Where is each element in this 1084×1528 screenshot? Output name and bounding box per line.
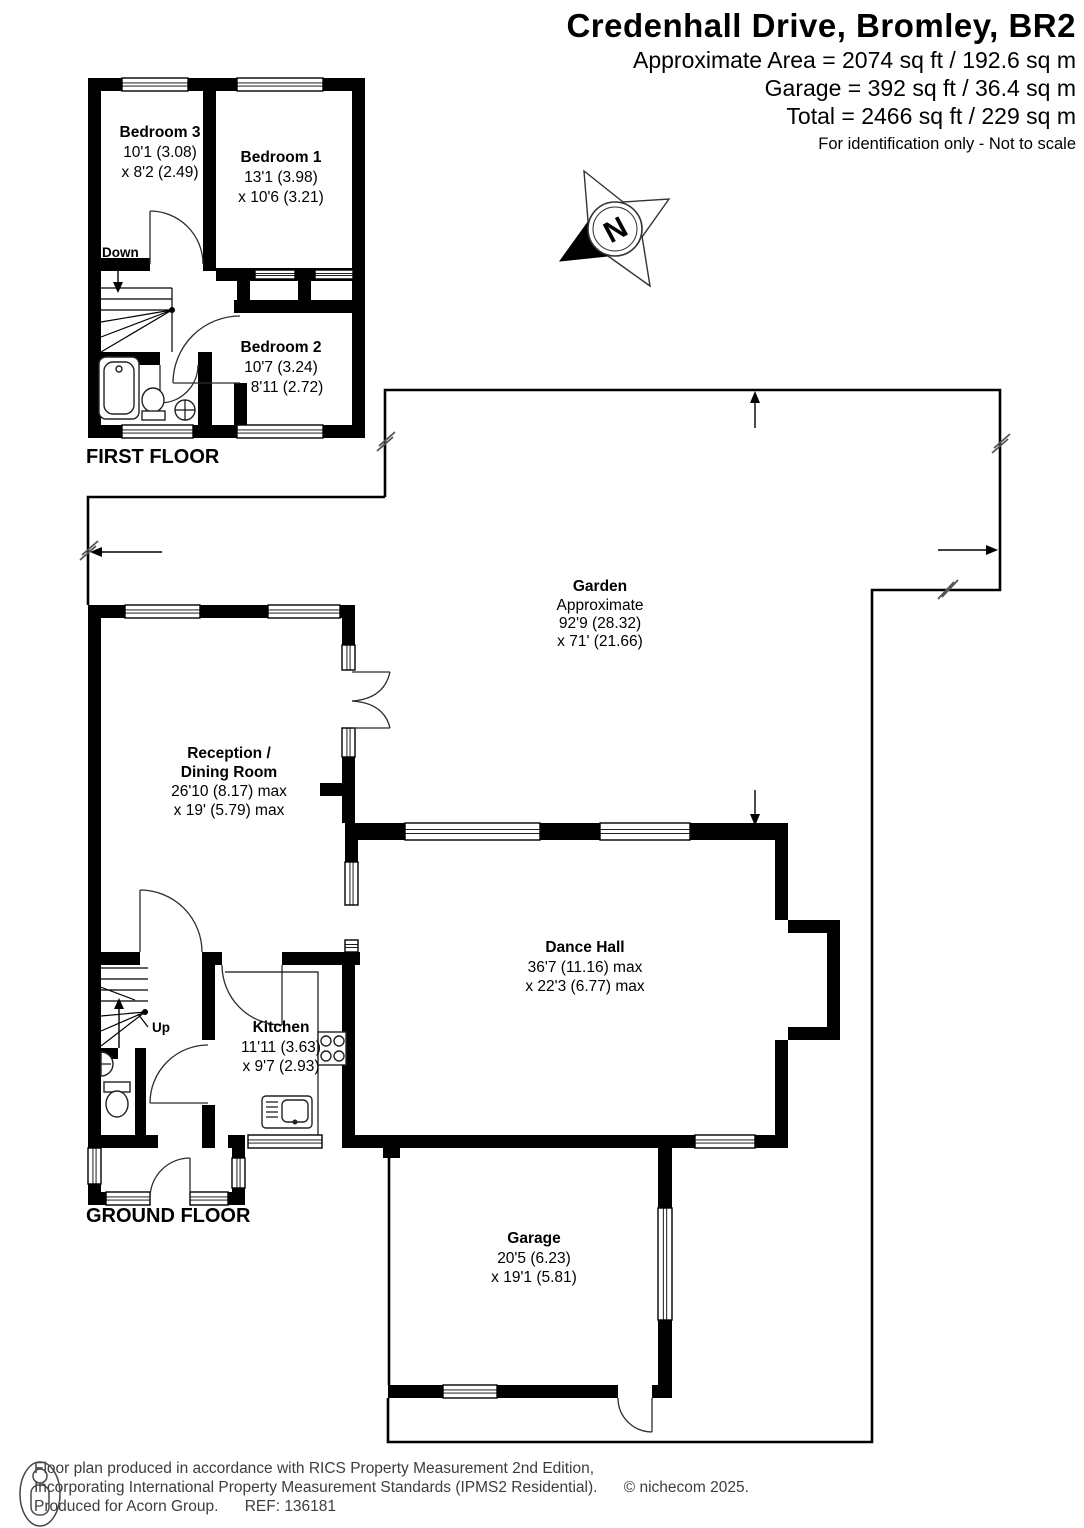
garden-name: Garden: [573, 578, 627, 595]
reception-dim2: x 19' (5.79) max: [174, 802, 285, 819]
reception-dim1: 26'10 (8.17) max: [171, 783, 287, 800]
kitchen-name: Kitchen: [253, 1019, 310, 1036]
footer-line3-row: Produced for Acorn Group. REF: 136181: [34, 1497, 749, 1516]
garden-dim1: 92'9 (28.32): [559, 615, 641, 632]
stairs-up: [95, 968, 148, 1048]
bedroom1-dim2: x 10'6 (3.21): [238, 189, 324, 206]
footer: Floor plan produced in accordance with R…: [16, 1459, 749, 1516]
bedroom2-dim1: 10'7 (3.24): [244, 359, 318, 376]
footer-line1: Floor plan produced in accordance with R…: [34, 1459, 749, 1478]
bedroom2-dim2: x 8'11 (2.72): [239, 379, 324, 396]
hob-icon: [318, 1032, 346, 1065]
footer-line2: Incorporating International Property Mea…: [34, 1479, 597, 1496]
footer-ref: REF: 136181: [245, 1498, 336, 1515]
kitchen-dim1: 11'11 (3.63): [241, 1039, 321, 1056]
stairs-up-label: Up: [152, 1020, 170, 1035]
stairs-down-label: Down: [102, 245, 139, 260]
first-floor-doors: [150, 211, 240, 403]
french-doors: [352, 672, 390, 728]
sink-icon-first-floor: [175, 400, 195, 420]
footer-lines: Floor plan produced in accordance with R…: [34, 1459, 749, 1516]
dance-hall-dim2: x 22'3 (6.77) max: [525, 978, 645, 995]
first-floor-label: FIRST FLOOR: [86, 446, 220, 468]
bedroom2-name: Bedroom 2: [241, 339, 322, 356]
room-labels: Bedroom 3 10'1 (3.08) x 8'2 (2.49) Bedro…: [86, 124, 645, 1286]
toilet-icon-ground-floor: [104, 1082, 130, 1117]
compass-icon: N: [560, 171, 669, 286]
ground-floor-plan: [88, 605, 840, 1432]
bedroom1-name: Bedroom 1: [241, 149, 322, 166]
garage-name: Garage: [507, 1230, 561, 1247]
footer-line2-row: Incorporating International Property Mea…: [34, 1478, 749, 1497]
bedroom3-name: Bedroom 3: [120, 124, 201, 141]
bedroom3-dim1: 10'1 (3.08): [123, 144, 197, 161]
reception-name1: Reception /: [187, 745, 271, 762]
ground-floor-label: GROUND FLOOR: [86, 1205, 251, 1227]
bedroom1-dim1: 13'1 (3.98): [244, 169, 318, 186]
kitchen-sink-icon: [262, 1096, 312, 1128]
kitchen-dim2: x 9'7 (2.93): [242, 1058, 319, 1075]
garage-dim2: x 19'1 (5.81): [491, 1269, 577, 1286]
dance-hall-name: Dance Hall: [545, 939, 624, 956]
reception-name2: Dining Room: [181, 764, 277, 781]
dance-hall-dim1: 36'7 (11.16) max: [528, 959, 643, 976]
footer-copyright: © nichecom 2025.: [624, 1479, 749, 1496]
garden-sub: Approximate: [556, 597, 643, 614]
floorplan-drawing: N: [0, 0, 1084, 1528]
boundary-break-ticks: [80, 432, 1010, 599]
bathtub-icon: [99, 357, 139, 419]
garage-dim1: 20'5 (6.23): [497, 1250, 571, 1267]
person-icon: [16, 1459, 68, 1528]
toilet-icon-first-floor: [142, 388, 165, 420]
bedroom3-dim2: x 8'2 (2.49): [121, 164, 198, 181]
floorplan-page: Credenhall Drive, Bromley, BR2 Approxima…: [0, 0, 1084, 1528]
garden-dim2: x 71' (21.66): [557, 633, 643, 650]
stairs-down: [101, 262, 175, 352]
